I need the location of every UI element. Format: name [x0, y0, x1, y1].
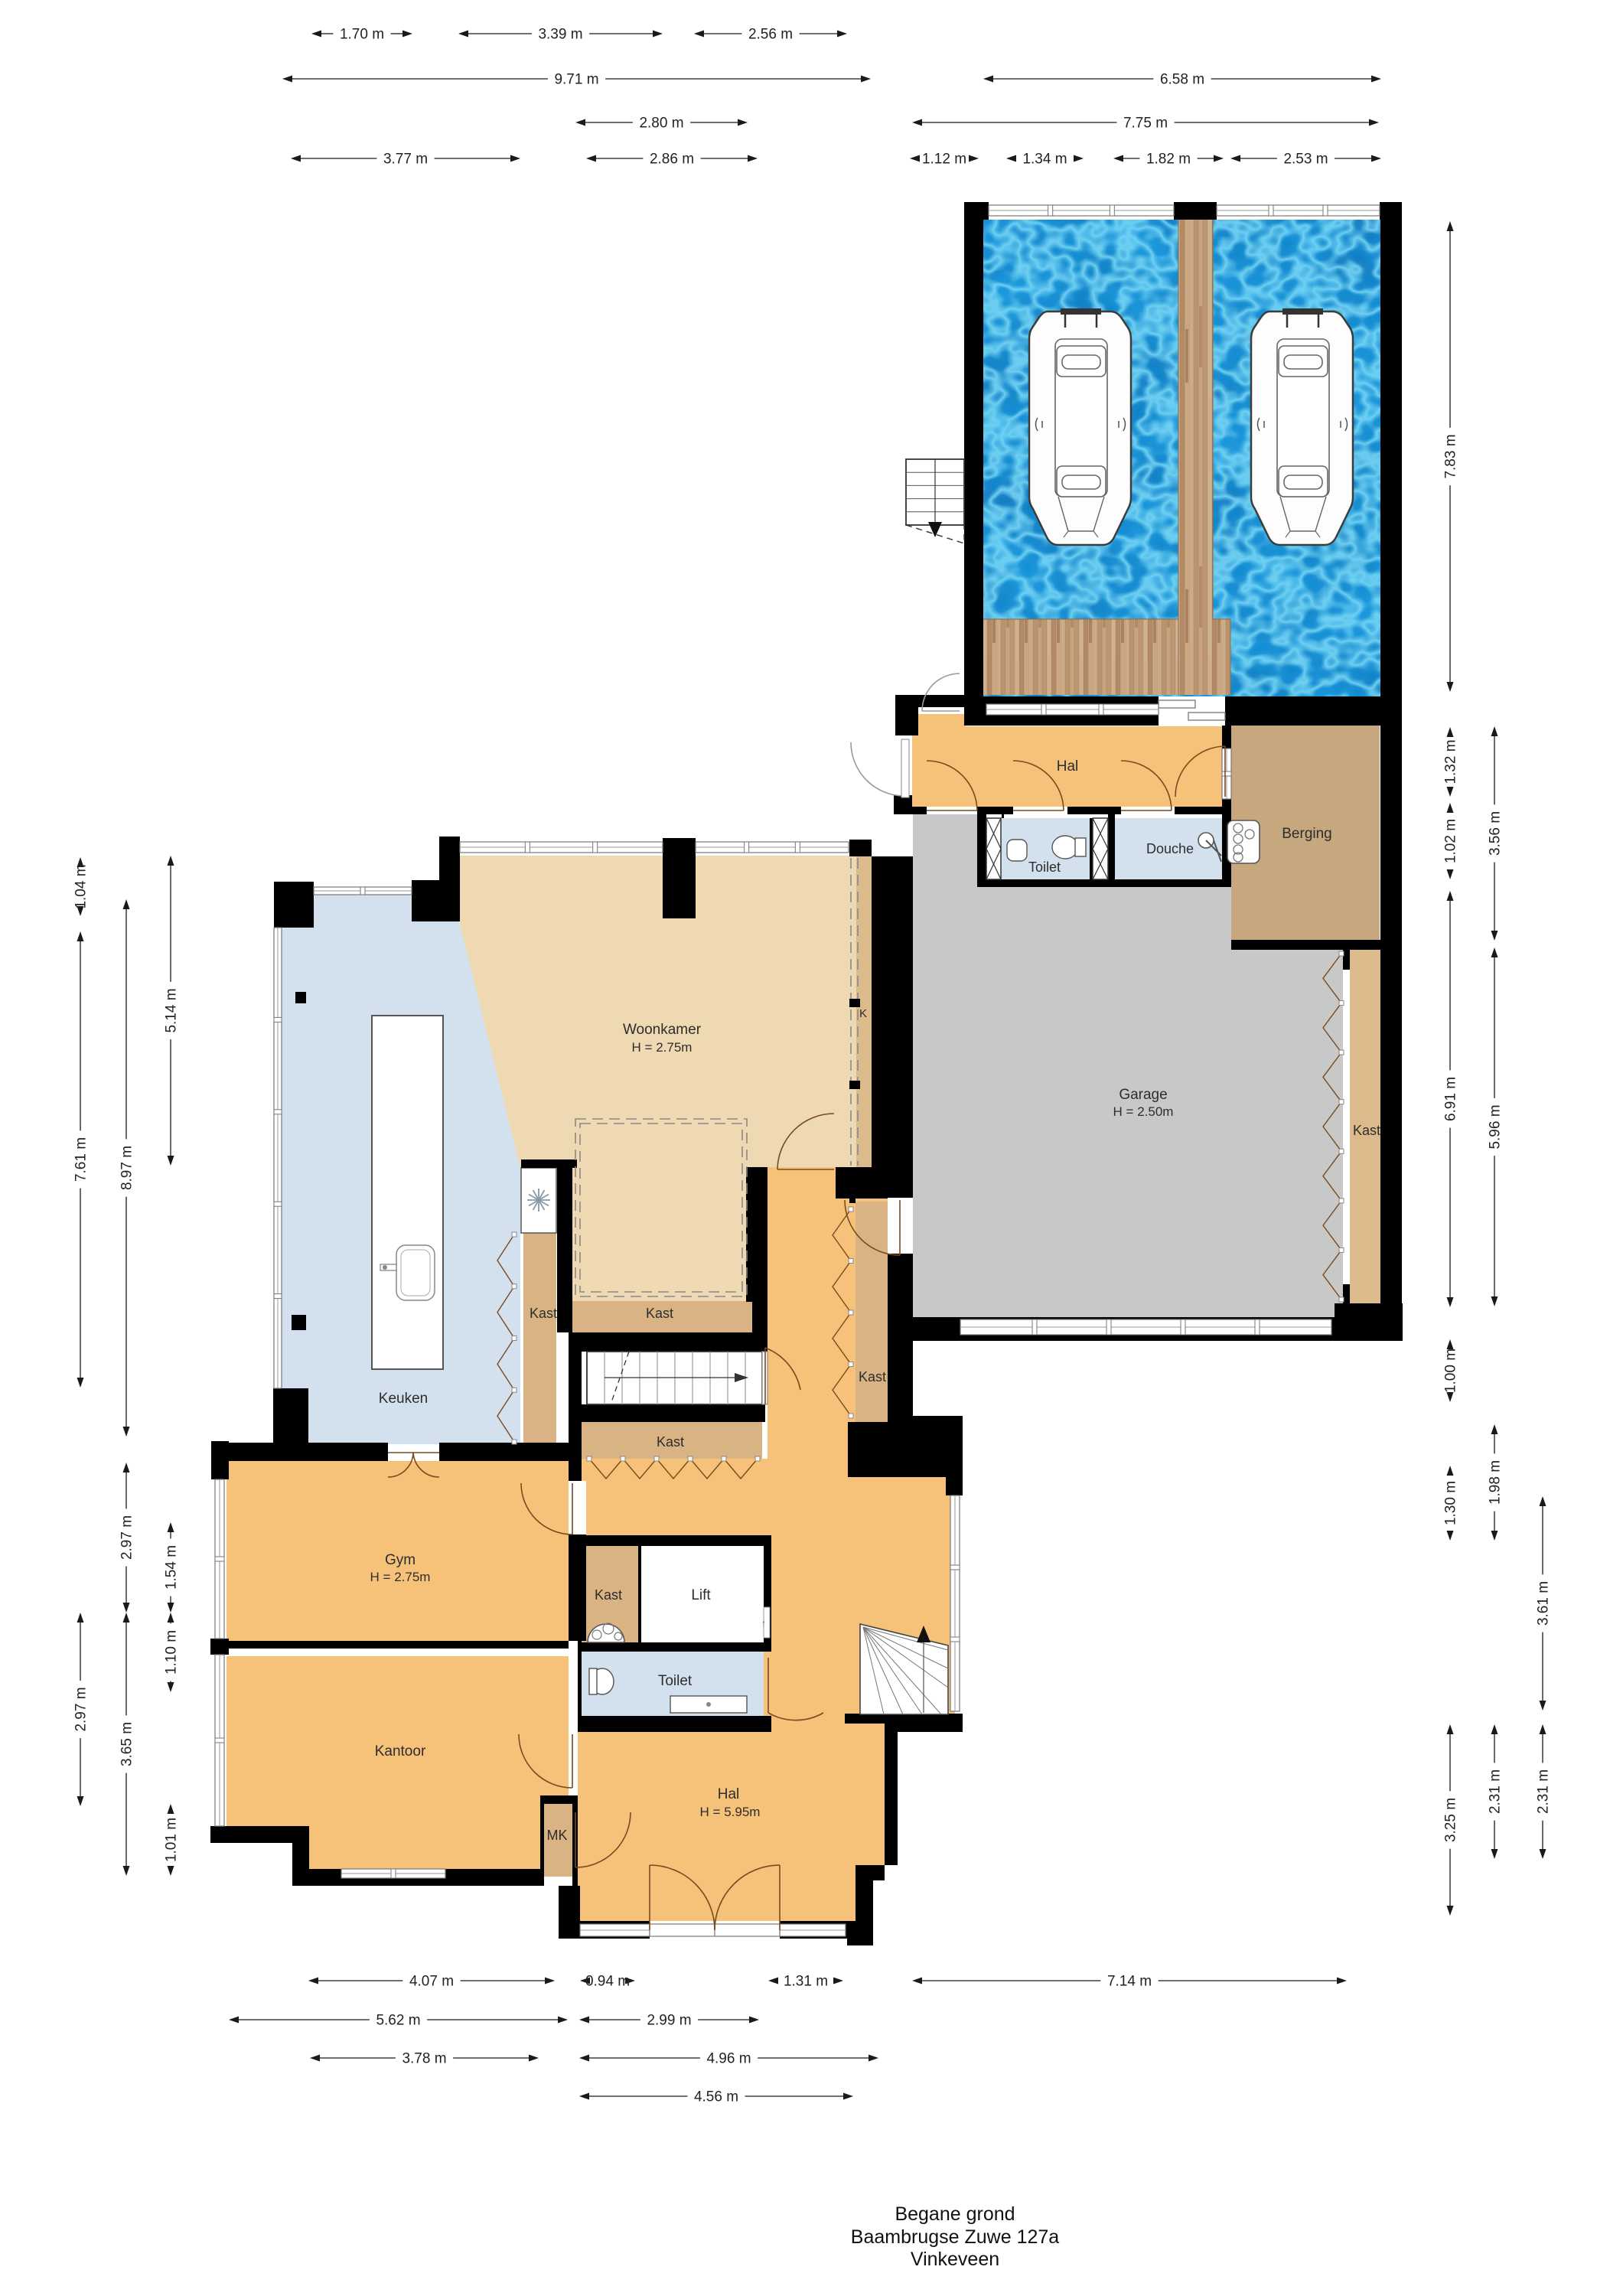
svg-text:Kast: Kast [646, 1306, 673, 1321]
svg-text:MK: MK [547, 1828, 568, 1843]
svg-text:Kast: Kast [1353, 1123, 1380, 1138]
svg-text:2.56 m: 2.56 m [748, 27, 793, 43]
svg-text:7.83 m: 7.83 m [1443, 434, 1459, 478]
svg-text:2.97 m: 2.97 m [73, 1687, 90, 1731]
svg-text:4.56 m: 4.56 m [694, 2089, 738, 2105]
svg-text:1.82 m: 1.82 m [1146, 152, 1191, 168]
svg-text:Kast: Kast [657, 1434, 684, 1450]
svg-text:3.65 m: 3.65 m [119, 1722, 135, 1766]
svg-text:Garage: Garage [1119, 1087, 1167, 1103]
svg-text:5.62 m: 5.62 m [376, 2013, 420, 2029]
svg-text:5.96 m: 5.96 m [1488, 1104, 1504, 1149]
svg-text:2.80 m: 2.80 m [639, 116, 683, 132]
svg-text:1.04 m: 1.04 m [73, 864, 90, 908]
svg-text:Berging: Berging [1282, 826, 1332, 842]
svg-text:1.00 m: 1.00 m [1443, 1349, 1459, 1393]
svg-text:2.31 m: 2.31 m [1488, 1769, 1504, 1814]
svg-text:Kantoor: Kantoor [375, 1743, 426, 1760]
svg-text:0.94 m: 0.94 m [585, 1974, 630, 1990]
svg-text:Hal: Hal [718, 1786, 740, 1802]
svg-text:H = 5.95m: H = 5.95m [700, 1805, 761, 1819]
svg-text:Kast: Kast [859, 1369, 886, 1384]
svg-text:2.31 m: 2.31 m [1536, 1769, 1552, 1814]
svg-text:1.02 m: 1.02 m [1443, 819, 1459, 863]
svg-text:Woonkamer: Woonkamer [623, 1022, 702, 1038]
svg-text:K: K [859, 1007, 867, 1020]
svg-text:3.25 m: 3.25 m [1443, 1798, 1459, 1842]
svg-text:9.71 m: 9.71 m [554, 72, 598, 88]
svg-text:6.91 m: 6.91 m [1443, 1077, 1459, 1121]
svg-text:1.30 m: 1.30 m [1443, 1481, 1459, 1525]
svg-text:7.75 m: 7.75 m [1123, 116, 1168, 132]
svg-text:3.61 m: 3.61 m [1536, 1581, 1552, 1626]
svg-text:H = 2.75m: H = 2.75m [370, 1570, 431, 1584]
svg-text:2.99 m: 2.99 m [647, 2013, 691, 2029]
svg-text:Begane grond: Begane grond [895, 2203, 1015, 2225]
svg-text:7.14 m: 7.14 m [1107, 1974, 1152, 1990]
svg-text:3.39 m: 3.39 m [538, 27, 582, 43]
svg-text:Gym: Gym [385, 1552, 416, 1568]
svg-text:4.96 m: 4.96 m [706, 2051, 751, 2067]
svg-text:2.97 m: 2.97 m [119, 1515, 135, 1560]
svg-text:Keuken: Keuken [379, 1391, 428, 1407]
svg-text:8.97 m: 8.97 m [119, 1146, 135, 1190]
svg-text:Douche: Douche [1146, 841, 1194, 856]
svg-text:3.56 m: 3.56 m [1488, 811, 1504, 856]
svg-text:5.14 m: 5.14 m [164, 988, 180, 1032]
svg-text:3.77 m: 3.77 m [383, 152, 428, 168]
svg-text:7.61 m: 7.61 m [73, 1137, 90, 1182]
svg-text:1.01 m: 1.01 m [164, 1818, 180, 1862]
svg-text:Kast: Kast [530, 1306, 557, 1321]
svg-text:1.54 m: 1.54 m [164, 1545, 180, 1590]
svg-text:4.07 m: 4.07 m [409, 1974, 454, 1990]
svg-text:Toilet: Toilet [1028, 859, 1061, 875]
svg-text:2.86 m: 2.86 m [650, 152, 694, 168]
svg-text:3.78 m: 3.78 m [402, 2051, 446, 2067]
svg-text:Kast: Kast [595, 1587, 622, 1603]
svg-text:Vinkeveen: Vinkeveen [911, 2249, 999, 2270]
svg-text:1.32 m: 1.32 m [1443, 739, 1459, 784]
svg-text:1.10 m: 1.10 m [164, 1630, 180, 1675]
svg-text:1.31 m: 1.31 m [784, 1974, 828, 1990]
svg-text:1.98 m: 1.98 m [1488, 1460, 1504, 1505]
svg-text:1.12 m: 1.12 m [922, 152, 966, 168]
svg-text:H = 2.75m: H = 2.75m [632, 1040, 693, 1055]
svg-text:↑: ↑ [761, 1618, 766, 1629]
svg-text:H = 2.50m: H = 2.50m [1113, 1104, 1174, 1119]
svg-text:6.58 m: 6.58 m [1160, 72, 1204, 88]
svg-text:1.70 m: 1.70 m [340, 27, 384, 43]
svg-text:Lift: Lift [691, 1587, 711, 1603]
svg-text:Hal: Hal [1057, 758, 1079, 775]
svg-text:1.34 m: 1.34 m [1022, 152, 1067, 168]
svg-text:Toilet: Toilet [658, 1673, 693, 1689]
svg-text:2.53 m: 2.53 m [1283, 152, 1328, 168]
svg-text:Baambrugse Zuwe 127a: Baambrugse Zuwe 127a [851, 2226, 1059, 2248]
